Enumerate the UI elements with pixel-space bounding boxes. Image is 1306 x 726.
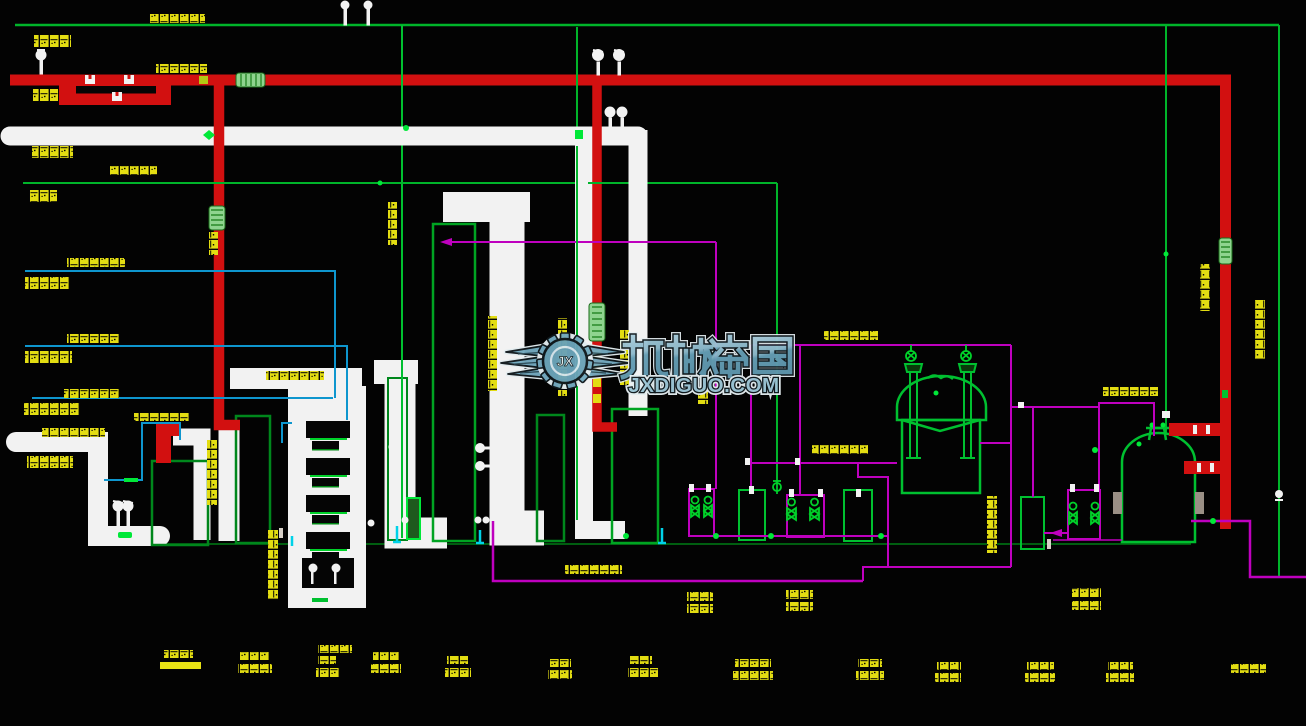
svg-text:JX: JX: [557, 354, 574, 369]
svg-text:JXDIGUO.COM: JXDIGUO.COM: [628, 374, 779, 397]
